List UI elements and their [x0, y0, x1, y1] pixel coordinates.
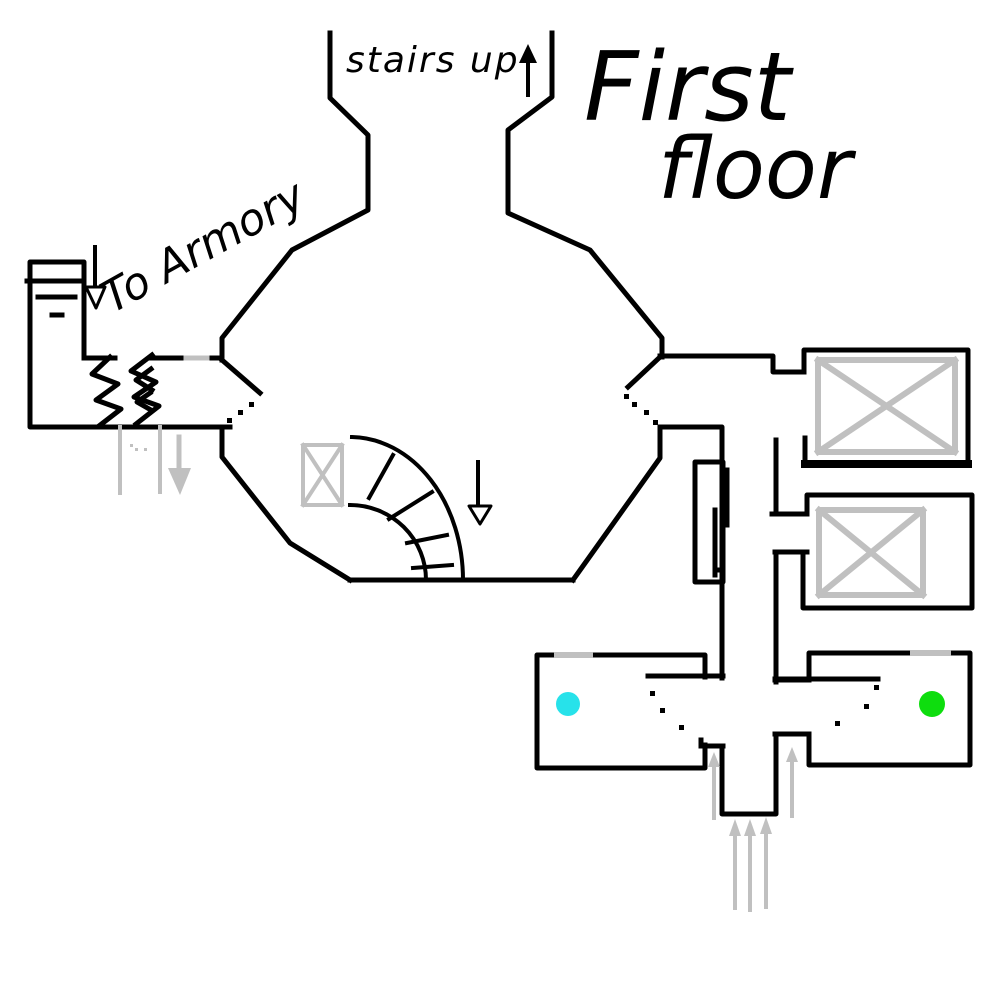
entrance-up-arrow-icon	[708, 752, 720, 767]
cyan-marker-dot	[556, 692, 580, 716]
first-floor-map-page: stairs up First floor To Armory	[0, 0, 1000, 1000]
green-marker-dot	[919, 691, 945, 717]
spiral-staircase	[350, 437, 463, 580]
crate-x-box-hall	[303, 445, 342, 505]
stairs-up-arrow-icon	[519, 44, 537, 63]
east-corner-diagonal	[628, 357, 660, 387]
entrance-up-arrow-icon	[729, 819, 741, 836]
corridor-door-frame	[695, 462, 723, 582]
page-title-line2: floor	[658, 120, 857, 219]
entrance-up-arrow-icon	[786, 747, 798, 762]
hall-down-arrow-icon	[469, 506, 491, 524]
handwritten-labels: stairs up First floor To Armory	[93, 33, 857, 324]
secret-door-dot	[835, 721, 840, 726]
secret-door-dot	[874, 685, 879, 690]
secret-door-dot	[650, 691, 655, 696]
secret-door-dot	[644, 410, 649, 415]
to-armory-label: To Armory	[93, 170, 315, 324]
stairs-up-label: stairs up	[346, 40, 520, 81]
secret-door-dot	[249, 402, 254, 407]
hall-southeast-wall	[573, 427, 660, 580]
secret-door-dot	[864, 704, 869, 709]
gray-dot	[130, 444, 133, 447]
secret-door-dot	[632, 402, 637, 407]
secret-door-dot	[624, 394, 629, 399]
secret-door-dot	[227, 418, 232, 423]
secret-door-dot	[679, 725, 684, 730]
west-corner-diagonal	[222, 360, 260, 393]
pencil-marks	[120, 358, 955, 910]
pencil-fills	[130, 444, 798, 836]
gray-dot	[144, 448, 147, 451]
floor-plan-canvas: stairs up First floor To Armory	[0, 0, 1000, 1000]
secret-door-dot	[653, 420, 658, 425]
corridor-left-wall	[660, 427, 776, 814]
secret-door-dot	[238, 410, 243, 415]
entrance-up-arrow-icon	[744, 819, 756, 836]
crate-x-box-east-room	[819, 510, 923, 595]
rubble-zigzag-1	[92, 357, 121, 426]
gray-dot	[135, 448, 138, 451]
east-passage-top-wall	[660, 356, 804, 372]
crate-x-box-northeast-room	[818, 360, 955, 452]
gray-passage-lines	[120, 427, 160, 493]
entrance-up-arrow-icon	[760, 817, 772, 834]
secret-door-dot	[660, 708, 665, 713]
gray-down-arrow-icon	[168, 468, 191, 495]
